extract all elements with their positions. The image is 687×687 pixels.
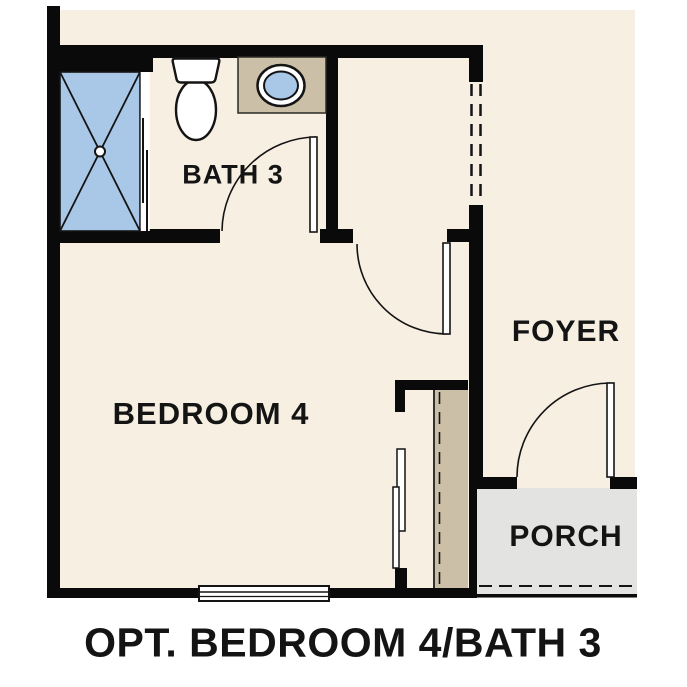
wall-top	[47, 45, 483, 58]
room-label-foyer: FOYER	[512, 315, 620, 349]
wall-foyer-bottom-right	[610, 477, 637, 489]
toilet-tank	[173, 59, 220, 83]
wall-right-top-stub	[469, 45, 483, 82]
room-label-porch: PORCH	[509, 520, 622, 554]
closet-door-panel	[393, 487, 399, 568]
wall-bath-divider	[326, 45, 338, 243]
floorplan-canvas: BATH 3 BEDROOM 4 FOYER PORCH OPT. BEDROO…	[0, 0, 687, 687]
vanity-sink	[238, 57, 326, 113]
shower-stall	[60, 72, 150, 231]
toilet	[173, 59, 220, 141]
window	[199, 586, 329, 601]
room-label-bath: BATH 3	[182, 160, 284, 191]
wall-shower-head	[47, 58, 153, 72]
wall-porch-left	[469, 488, 477, 597]
toilet-bowl	[176, 80, 216, 140]
wall-right-main	[469, 205, 483, 488]
wall-foyer-bottom-left	[469, 477, 517, 489]
optional-wall-strip	[434, 390, 468, 588]
door-leaf	[443, 243, 450, 334]
wall-bath-bottom-corner	[320, 229, 353, 243]
door-leaf	[310, 137, 317, 232]
room-label-bedroom: BEDROOM 4	[113, 396, 310, 432]
wall-left	[47, 6, 60, 598]
wall-closet-bottom-stub	[395, 568, 407, 588]
wall-closet-top-stub	[395, 380, 405, 412]
door-leaf	[607, 383, 614, 477]
sink-basin	[264, 72, 298, 100]
porch-front-edge	[477, 594, 637, 598]
plan-title: OPT. BEDROOM 4/BATH 3	[84, 620, 602, 667]
wall-closet-top	[395, 380, 468, 390]
shower-drain	[95, 147, 105, 157]
